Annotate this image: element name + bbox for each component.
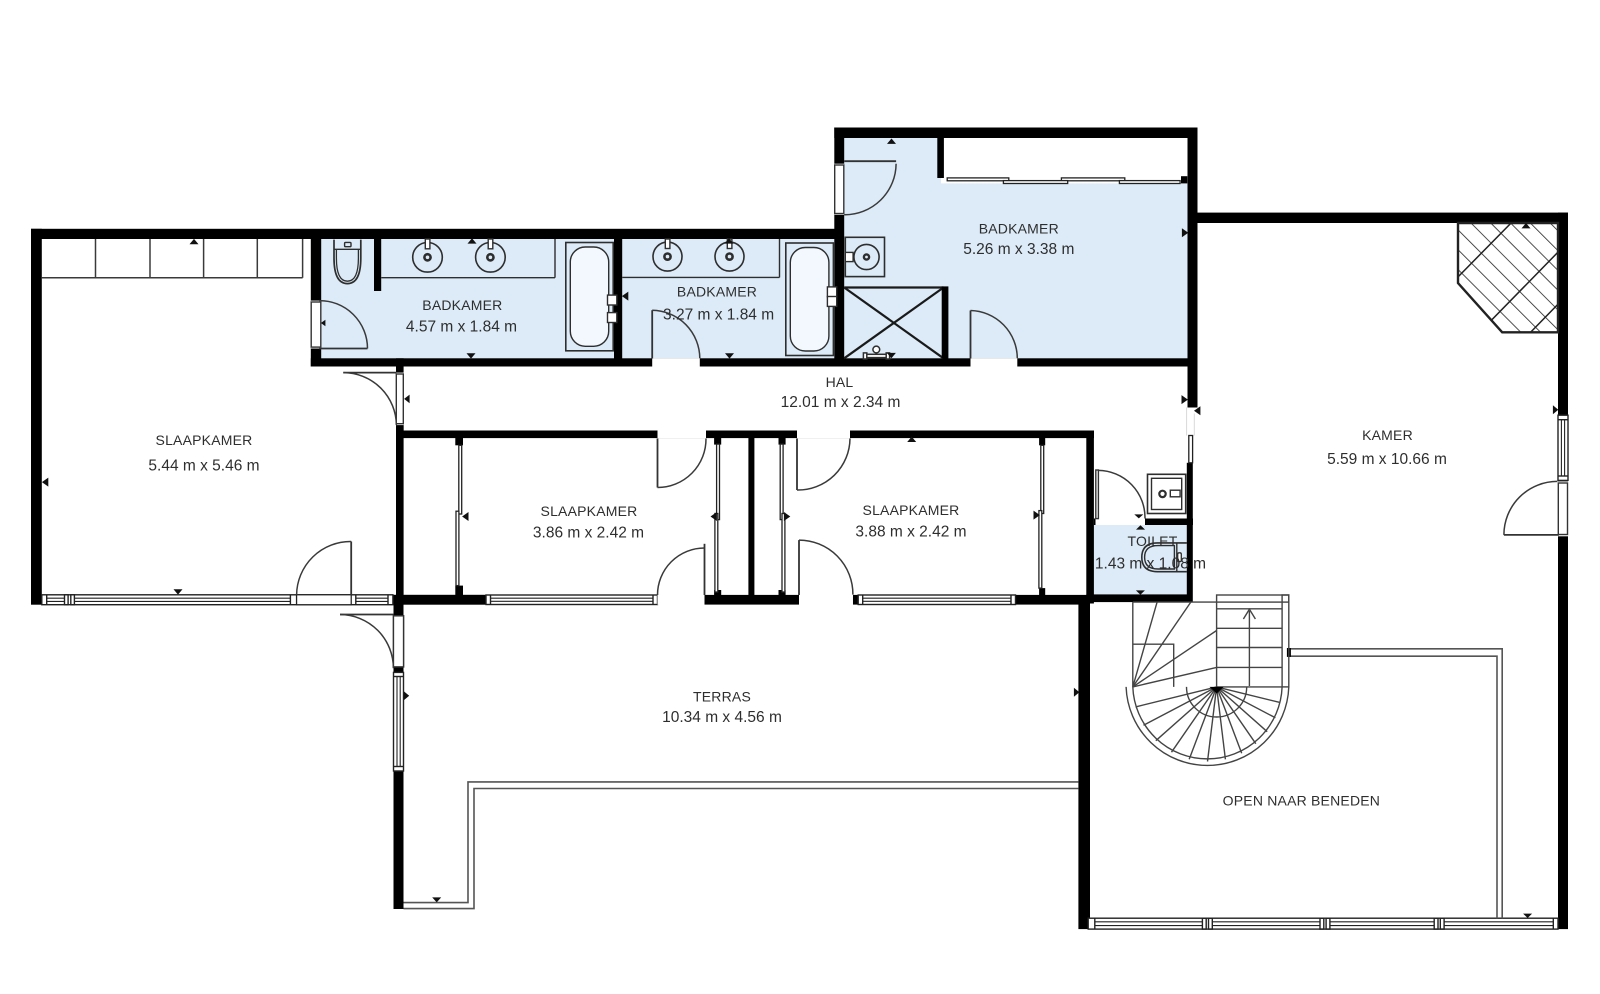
svg-text:3.27 m x 1.84 m: 3.27 m x 1.84 m — [663, 307, 774, 324]
svg-text:5.44 m x 5.46 m: 5.44 m x 5.46 m — [148, 457, 259, 474]
svg-text:3.88 m x 2.42 m: 3.88 m x 2.42 m — [855, 524, 966, 541]
svg-text:SLAAPKAMER: SLAAPKAMER — [156, 432, 253, 448]
svg-text:OPEN NAAR BENEDEN: OPEN NAAR BENEDEN — [1223, 792, 1380, 808]
svg-text:BADKAMER: BADKAMER — [979, 221, 1059, 237]
svg-text:SLAAPKAMER: SLAAPKAMER — [863, 502, 960, 518]
svg-text:1.43 m x 1.08 m: 1.43 m x 1.08 m — [1095, 556, 1206, 573]
svg-text:4.57 m x 1.84 m: 4.57 m x 1.84 m — [406, 319, 517, 336]
svg-text:12.01 m x 2.34 m: 12.01 m x 2.34 m — [781, 394, 901, 411]
svg-text:TOILET: TOILET — [1128, 533, 1178, 549]
svg-text:5.59 m x 10.66 m: 5.59 m x 10.66 m — [1327, 451, 1447, 468]
svg-text:HAL: HAL — [826, 374, 854, 390]
svg-text:TERRAS: TERRAS — [693, 689, 751, 705]
svg-text:SLAAPKAMER: SLAAPKAMER — [541, 503, 638, 519]
svg-text:BADKAMER: BADKAMER — [422, 297, 502, 313]
svg-text:BADKAMER: BADKAMER — [677, 284, 757, 300]
svg-text:5.26 m x 3.38 m: 5.26 m x 3.38 m — [963, 241, 1074, 258]
svg-text:3.86 m x 2.42 m: 3.86 m x 2.42 m — [533, 525, 644, 542]
svg-text:10.34 m x 4.56 m: 10.34 m x 4.56 m — [662, 709, 782, 726]
svg-text:KAMER: KAMER — [1362, 427, 1413, 443]
